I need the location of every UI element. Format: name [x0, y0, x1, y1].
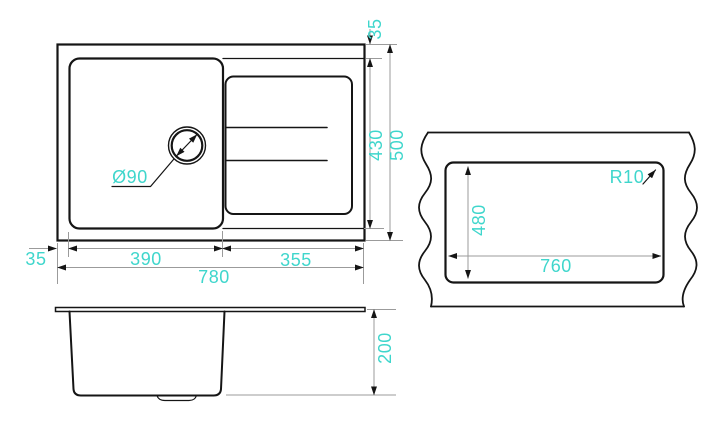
dim-label-top-rim: 35: [366, 18, 384, 39]
radius-leader-line: [643, 170, 656, 184]
dim-label-total-length: 500: [388, 129, 406, 161]
dim-label-cutout-width: 760: [540, 257, 572, 275]
drain-diameter-label: Ø90: [112, 168, 148, 186]
drawing-linework: [0, 0, 720, 431]
side-view-outline: [56, 308, 366, 401]
side-view-dimensions: [226, 310, 396, 396]
sink-technical-drawing: 35 430 500 Ø90 35 390 355 780 200 480 76…: [0, 0, 720, 431]
break-line-right: [683, 133, 697, 307]
drain-diameter-arrow: [177, 135, 198, 157]
dim-label-drainer-width: 355: [280, 251, 312, 269]
dim-label-bowl-length: 430: [367, 129, 385, 161]
dim-label-total-width: 780: [198, 268, 230, 286]
dim-label-cutout-height: 480: [470, 204, 488, 236]
break-line-left: [419, 133, 432, 307]
dim-label-bowl-width: 390: [130, 250, 162, 268]
plan-bottom-dimensions: [29, 231, 364, 284]
countertop-cutout-view: [419, 133, 697, 307]
plan-view-outline: [58, 45, 365, 241]
dim-label-depth: 200: [376, 332, 394, 364]
dim-label-corner-radius: R10: [610, 168, 645, 186]
dim-label-left-rim: 35: [25, 250, 46, 268]
